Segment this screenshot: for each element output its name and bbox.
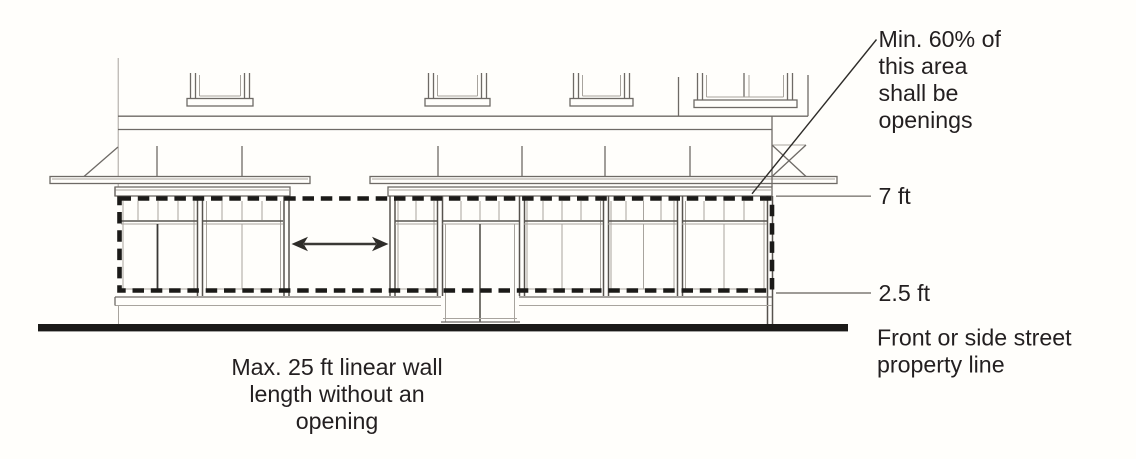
min-openings-line-3: shall be <box>879 80 959 106</box>
min-openings-line-1: Min. 60% of <box>879 26 1002 52</box>
upper-floor <box>118 58 808 187</box>
storefront-window-c <box>395 201 437 289</box>
storefront-window-a <box>121 201 197 289</box>
left-canopy-slab <box>50 177 310 184</box>
max-wall-line-2: length without an <box>249 381 424 407</box>
storefront-fascia <box>115 187 772 196</box>
window-sill <box>425 99 490 107</box>
min-openings-line-2: this area <box>879 53 968 79</box>
dimension-7ft: 7 ft <box>879 183 912 209</box>
storefront-window-b <box>203 201 283 289</box>
upper-window-3 <box>570 73 633 106</box>
street-property-line <box>38 324 848 331</box>
storefront-transparency-diagram: Min. 60% of this area shall be openings … <box>0 0 1136 459</box>
window-sill <box>570 99 633 107</box>
wall-gap-double-arrow <box>292 237 389 251</box>
annotation-min-openings: Min. 60% of this area shall be openings <box>879 26 1002 133</box>
upper-window-1 <box>187 73 253 106</box>
canopy-zone <box>50 116 837 187</box>
canopy-brace <box>84 147 118 177</box>
storefront-window-d <box>524 201 603 289</box>
dimension-2-5ft: 2.5 ft <box>879 280 931 306</box>
storefront-glazing <box>121 196 773 324</box>
upper-window-4 <box>694 73 797 108</box>
max-wall-line-3: opening <box>296 408 379 434</box>
property-line-line-1: Front or side street <box>877 325 1072 351</box>
storefront-piers <box>198 196 773 324</box>
max-wall-line-1: Max. 25 ft linear wall <box>231 354 442 380</box>
upper-window-2 <box>425 73 490 106</box>
annotation-property-line: Front or side street property line <box>877 325 1072 378</box>
window-sill <box>187 99 253 107</box>
floor-band <box>118 116 808 129</box>
building-elevation-drawing: Min. 60% of this area shall be openings … <box>0 0 1136 459</box>
property-line-line-2: property line <box>877 352 1005 378</box>
bulkhead-base <box>115 187 772 324</box>
min-openings-line-4: openings <box>879 107 973 133</box>
window-sill <box>694 100 797 108</box>
entry-door <box>441 201 520 322</box>
annotation-max-wall: Max. 25 ft linear wall length without an… <box>231 354 442 434</box>
storefront-window-e <box>608 201 677 289</box>
storefront-window-f <box>682 201 767 289</box>
right-canopy-slab <box>370 177 837 184</box>
